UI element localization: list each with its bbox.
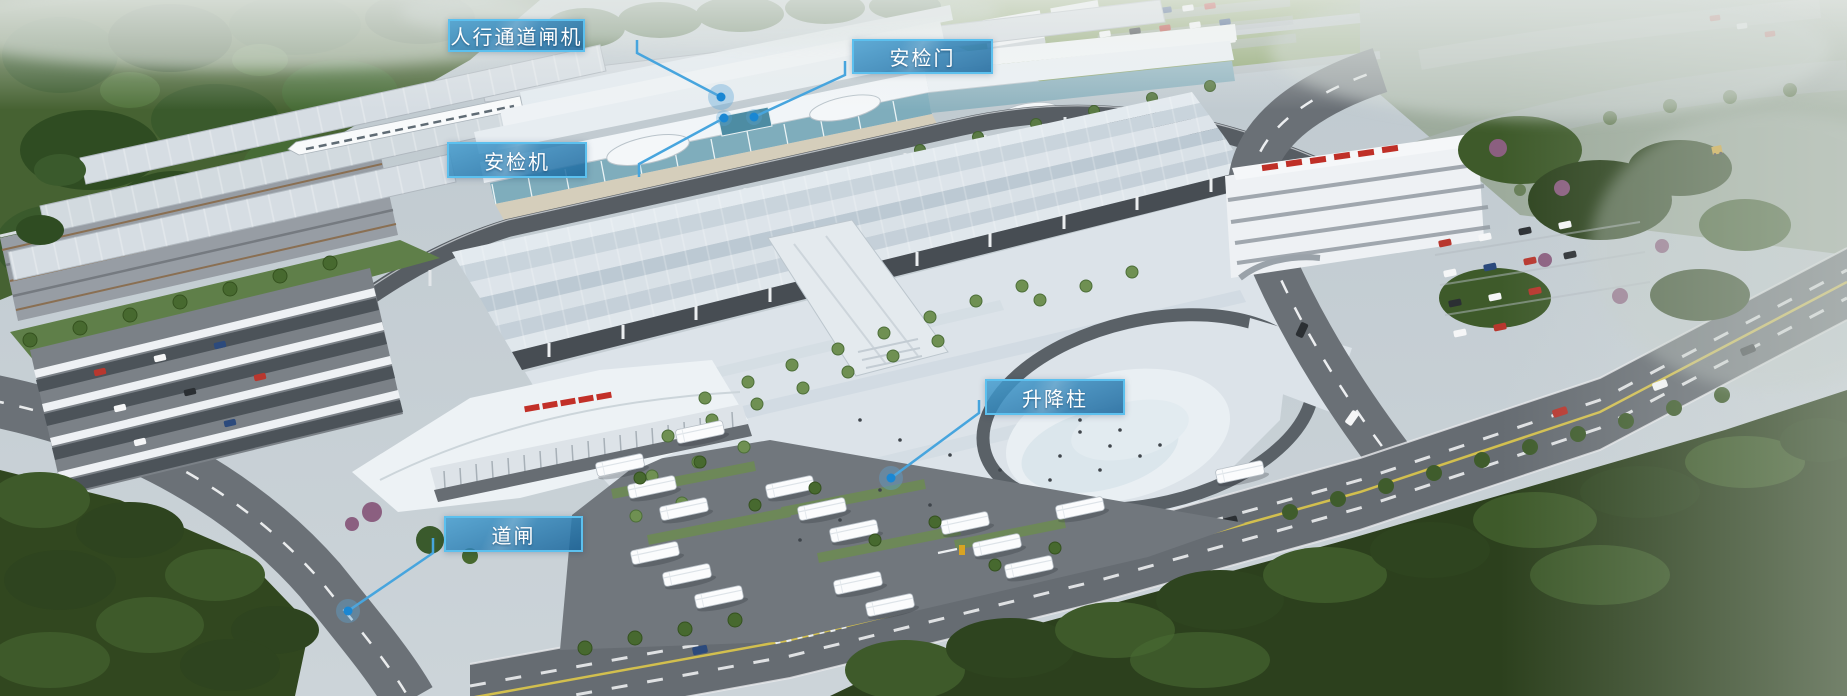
- annotation-label-road-barrier-text: 道闸: [492, 520, 536, 549]
- annotation-label-security-scanner-text: 安检机: [484, 146, 550, 175]
- aerial-render-background: [0, 0, 1847, 696]
- annotation-label-security-scanner[interactable]: 安检机: [447, 142, 587, 178]
- station-aerial-view: 人行通道闸机 安检门 安检机 升降柱 道闸: [0, 0, 1847, 696]
- marker-dot-security-door: [750, 113, 759, 122]
- marker-dot-lift-bollard: [887, 474, 896, 483]
- annotation-label-pedestrian-gate[interactable]: 人行通道闸机: [448, 19, 585, 52]
- annotation-label-lift-bollard-text: 升降柱: [1022, 383, 1088, 412]
- marker-dot-road-barrier: [344, 607, 353, 616]
- annotation-label-lift-bollard[interactable]: 升降柱: [985, 379, 1125, 415]
- annotation-label-security-door-text: 安检门: [890, 42, 956, 71]
- annotation-label-pedestrian-gate-text: 人行通道闸机: [451, 21, 583, 50]
- annotation-label-security-door[interactable]: 安检门: [852, 39, 993, 74]
- marker-dot-security-scanner: [720, 114, 729, 123]
- marker-dot-pedestrian-gate: [717, 93, 726, 102]
- annotation-label-road-barrier[interactable]: 道闸: [444, 516, 583, 552]
